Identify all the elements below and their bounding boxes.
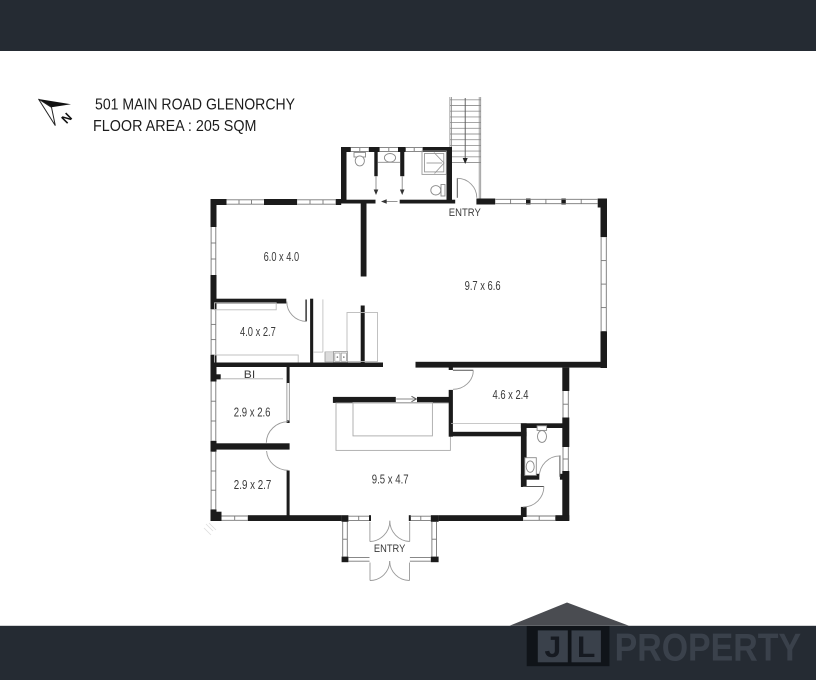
svg-text:4.6 x 2.4: 4.6 x 2.4 [493,388,529,402]
svg-text:501 MAIN ROAD GLENORCHY: 501 MAIN ROAD GLENORCHY [95,97,295,114]
svg-text:BI: BI [244,369,255,381]
svg-text:4.0 x 2.7: 4.0 x 2.7 [240,325,276,339]
svg-text:9.7 x 6.6: 9.7 x 6.6 [465,279,501,293]
svg-text:J: J [544,631,561,664]
svg-text:ENTRY: ENTRY [374,543,405,555]
svg-text:2.9 x 2.7: 2.9 x 2.7 [234,478,272,492]
svg-text:9.5 x 4.7: 9.5 x 4.7 [372,472,409,486]
svg-text:6.0 x 4.0: 6.0 x 4.0 [264,250,300,264]
svg-text:2.9 x 2.6: 2.9 x 2.6 [234,406,271,420]
svg-text:ENTRY: ENTRY [449,207,481,219]
svg-text:FLOOR AREA : 205 SQM: FLOOR AREA : 205 SQM [93,118,257,135]
svg-text:PROPERTY: PROPERTY [615,627,802,670]
svg-text:L: L [577,631,595,664]
